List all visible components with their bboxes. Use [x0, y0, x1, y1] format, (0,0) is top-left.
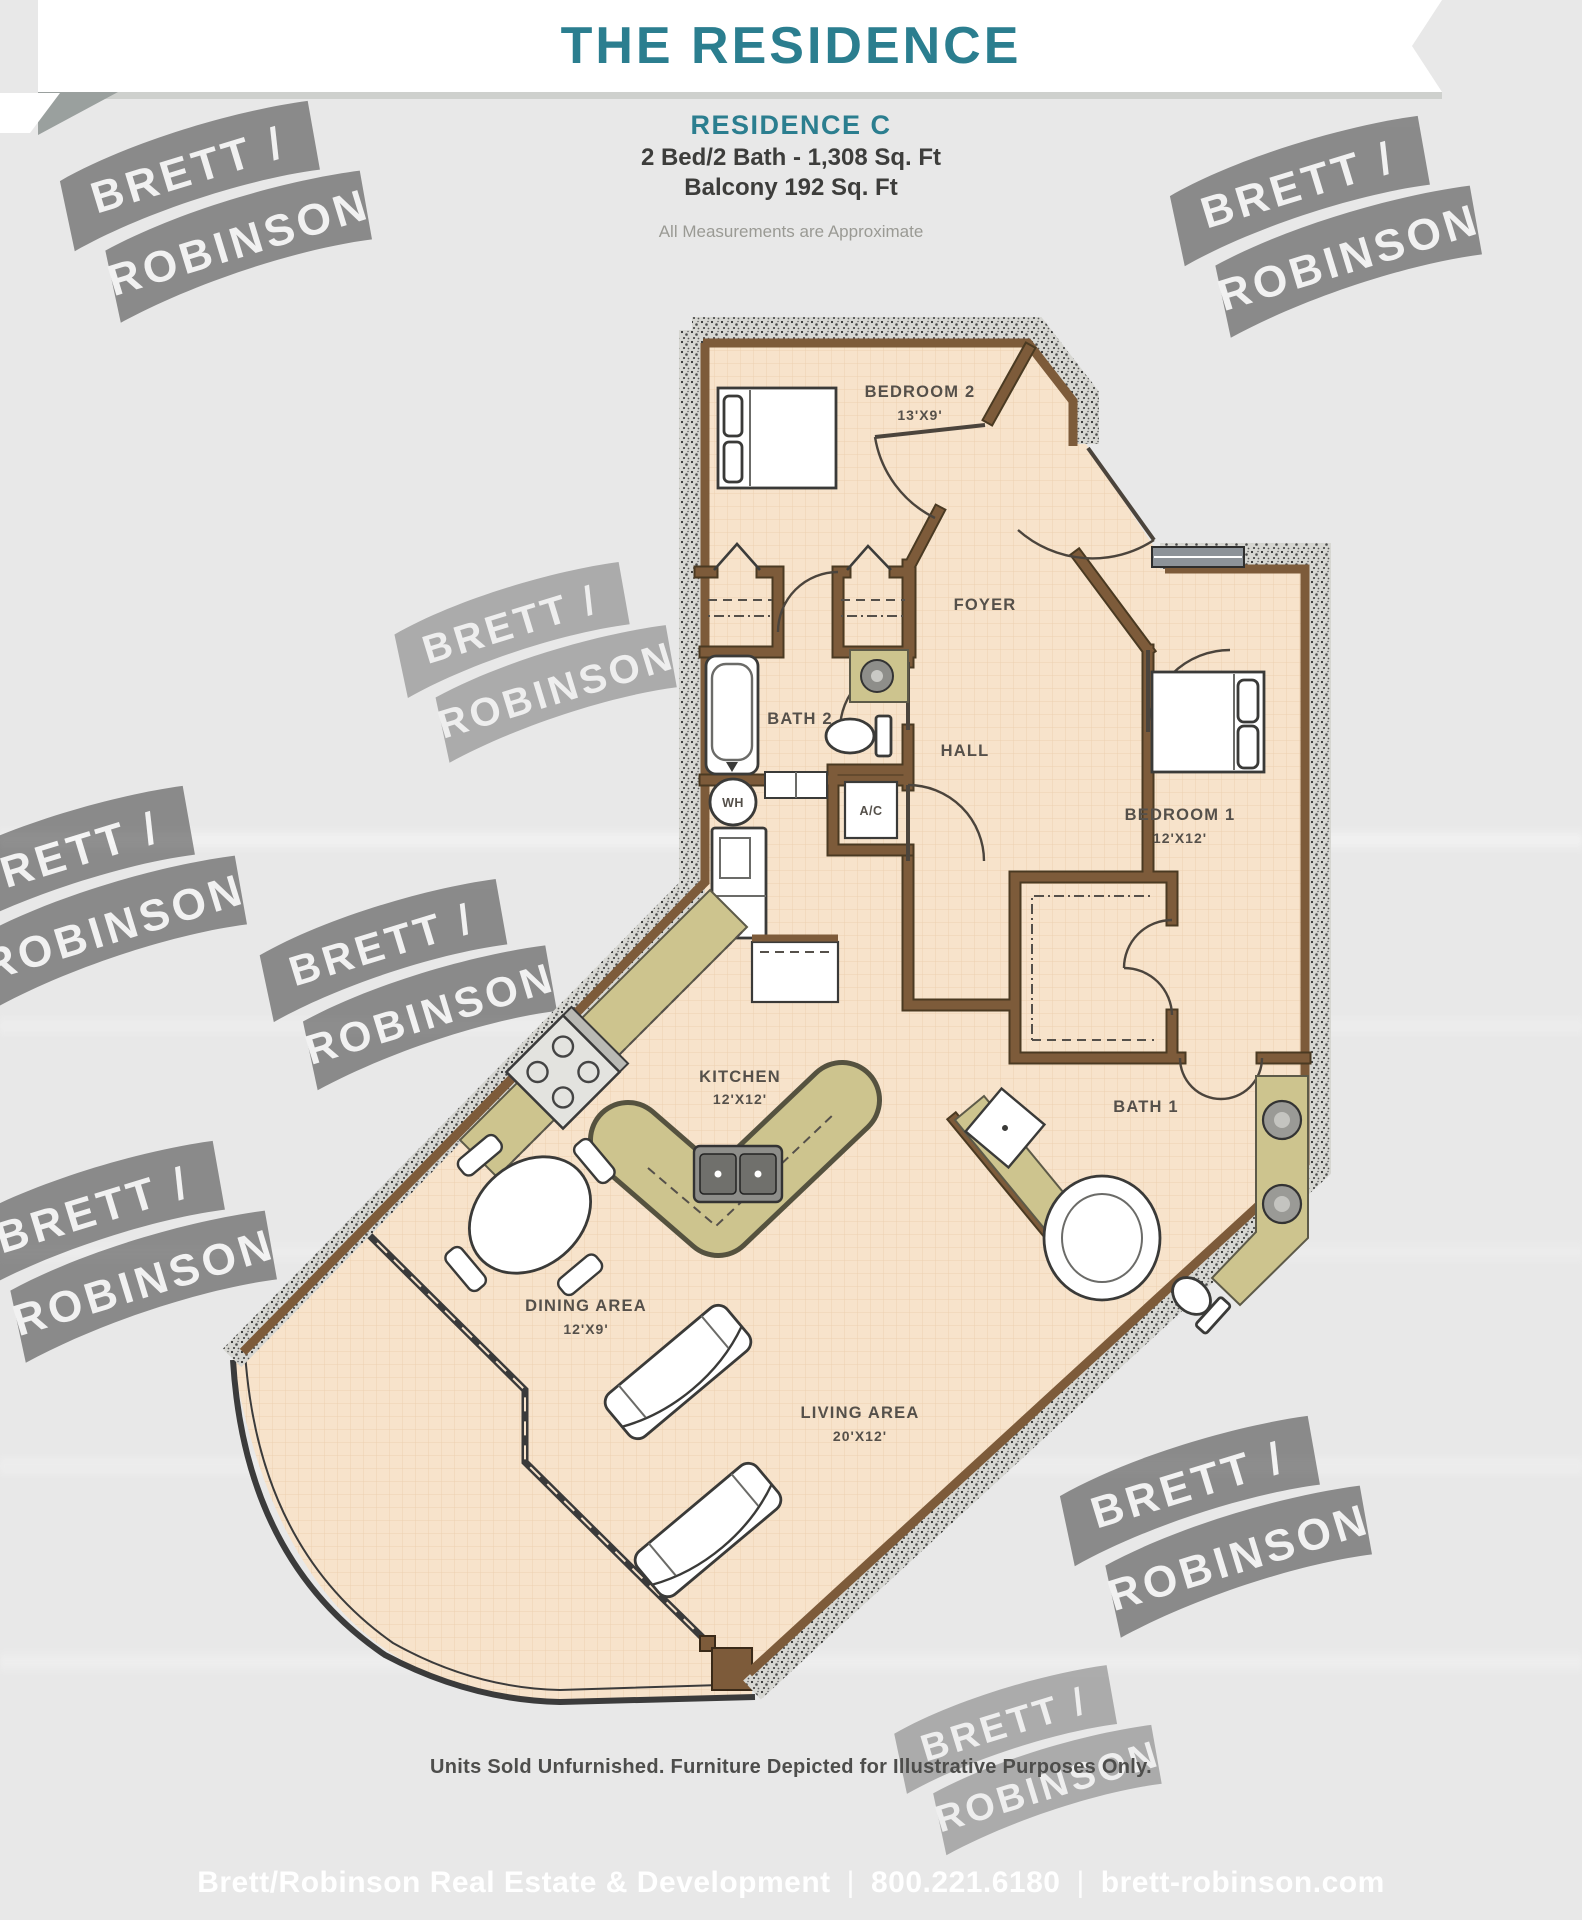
room-label-bedroom1: BEDROOM 1: [1125, 806, 1236, 824]
room-label-foyer: FOYER: [954, 596, 1017, 614]
kitchen-counter-dishwasher: [752, 938, 838, 1002]
footer-company: Brett/Robinson Real Estate & Development: [197, 1866, 830, 1899]
room-size-bedroom1: 12'X12': [1153, 830, 1207, 846]
footer-phone: 800.221.6180: [871, 1866, 1061, 1899]
footer-separator: |: [831, 1866, 871, 1899]
room-label-bath1: BATH 1: [1113, 1098, 1179, 1116]
double-sink-icon: [694, 1146, 782, 1202]
room-label-ac: A/C: [859, 804, 882, 818]
measurements-note: All Measurements are Approximate: [0, 222, 1582, 242]
specs-line1: 2 Bed/2 Bath - 1,308 Sq. Ft: [0, 144, 1582, 172]
floorplan-scene: BRETT /ROBINSON BRETT /ROBINSON BRETT /R…: [0, 0, 1582, 1920]
footer-separator: |: [1060, 1866, 1100, 1899]
bed-icon: [1152, 672, 1264, 772]
flyer-page: BRETT /ROBINSON BRETT /ROBINSON BRETT /R…: [0, 0, 1582, 1920]
footer-website: brett-robinson.com: [1101, 1866, 1385, 1899]
room-label-living: LIVING AREA: [801, 1404, 920, 1422]
room-size-kitchen: 12'X12': [713, 1091, 767, 1107]
footer-bar: Brett/Robinson Real Estate & Development…: [0, 1866, 1582, 1900]
footer-disclaimer: Units Sold Unfurnished. Furniture Depict…: [0, 1756, 1582, 1779]
banner-shadow: [48, 92, 1442, 99]
room-label-kitchen: KITCHEN: [699, 1068, 781, 1086]
brett-robinson-watermark-logo: BRETT /ROBINSON: [1050, 1399, 1382, 1645]
bathtub-icon: [706, 656, 758, 774]
room-label-hall: HALL: [941, 742, 990, 760]
room-size-living: 20'X12': [833, 1428, 887, 1444]
room-label-wh: WH: [722, 796, 744, 810]
specs-line2: Balcony 192 Sq. Ft: [0, 174, 1582, 202]
bed-icon: [718, 388, 836, 488]
plan-name: RESIDENCE C: [0, 110, 1582, 141]
brett-robinson-watermark-logo: BRETT /ROBINSON: [0, 769, 257, 1015]
brett-robinson-watermark-logo: BRETT /ROBINSON: [386, 546, 686, 768]
room-label-bath2: BATH 2: [767, 710, 833, 728]
bath2-vanity: [850, 650, 908, 702]
room-label-bedroom2: BEDROOM 2: [865, 383, 976, 401]
room-size-bedroom2: 13'X9': [897, 407, 942, 423]
window: [1152, 547, 1244, 567]
wall-cabinet: [765, 772, 827, 798]
toilet-icon: [826, 716, 891, 756]
page-title: THE RESIDENCE: [0, 16, 1582, 76]
room-size-dining: 12'X9': [563, 1321, 608, 1337]
garden-tub-icon: [1044, 1176, 1160, 1300]
room-label-dining: DINING AREA: [525, 1297, 647, 1315]
